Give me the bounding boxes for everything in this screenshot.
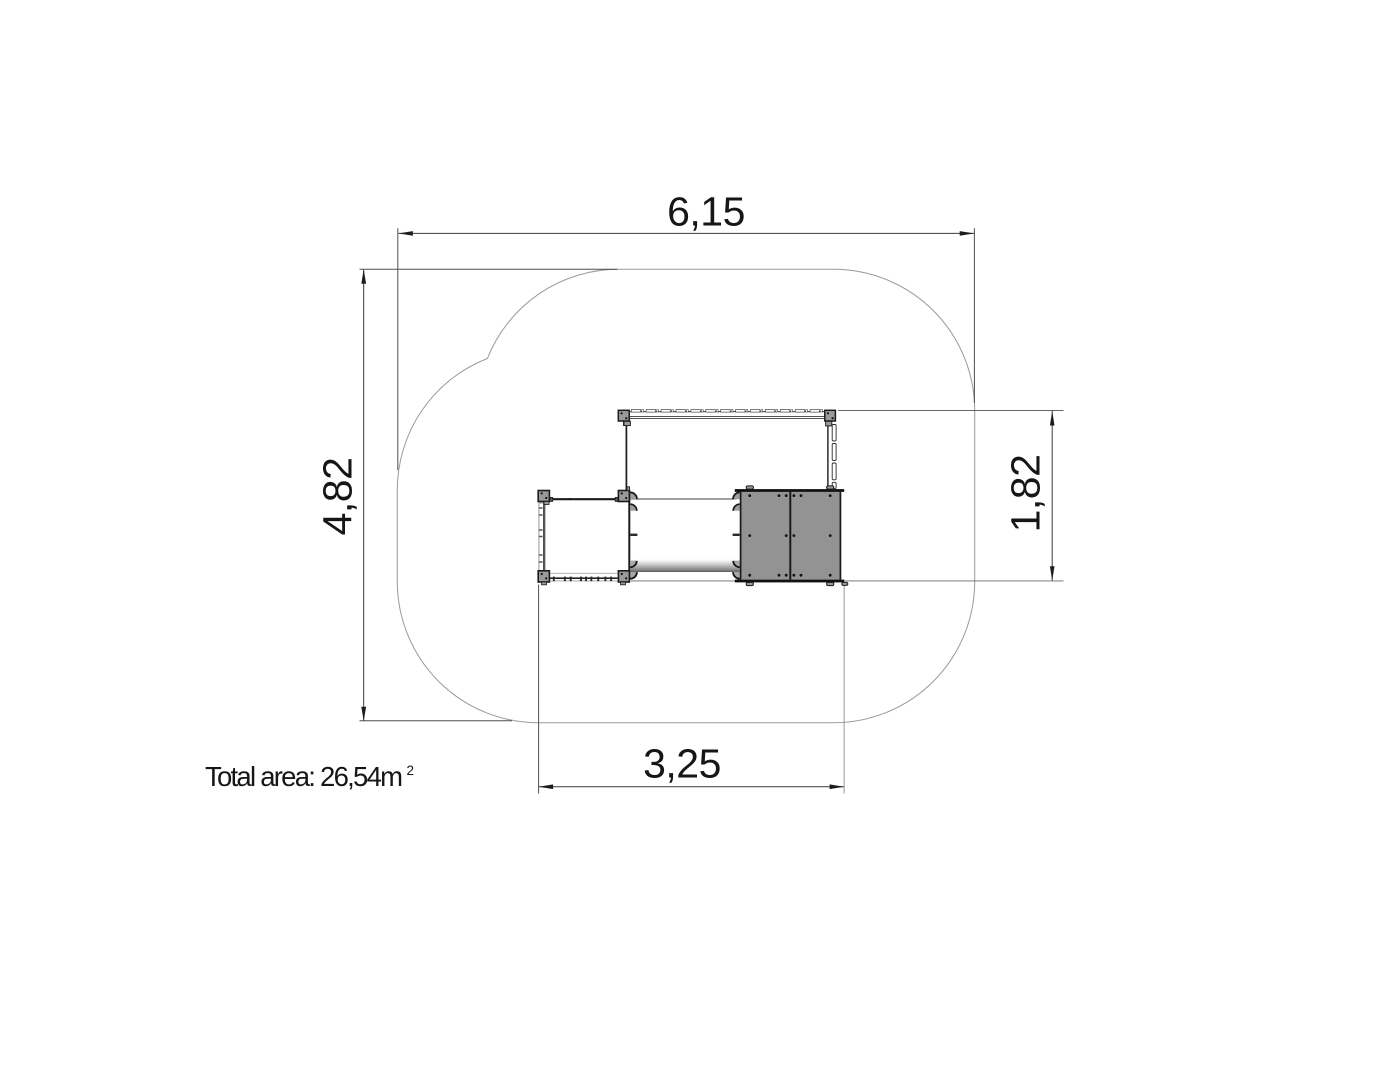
svg-text:Total area: 26,54m: Total area: 26,54m (205, 761, 402, 792)
svg-text:6,15: 6,15 (667, 189, 745, 235)
svg-text:3,25: 3,25 (643, 741, 721, 787)
svg-text:1,82: 1,82 (1003, 455, 1049, 533)
svg-text:2: 2 (407, 763, 415, 778)
svg-text:4,82: 4,82 (315, 458, 361, 536)
